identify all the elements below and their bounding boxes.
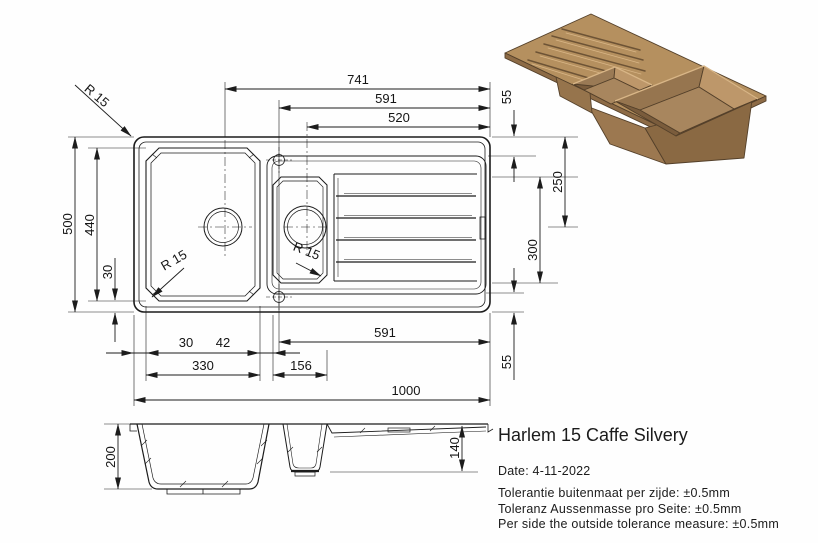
dim-200-label: 200	[103, 446, 118, 468]
dim-300-label: 300	[525, 239, 540, 261]
dim-330-label: 330	[192, 358, 214, 373]
drainer-grooves	[334, 174, 477, 281]
dim-500-label: 500	[60, 213, 75, 235]
radius-label-small-basin: R 15	[291, 239, 322, 263]
radius-label-main-basin: R 15	[158, 247, 189, 274]
radius-leader-main-basin	[152, 268, 184, 297]
dim-55-bottom-label: 55	[499, 355, 514, 369]
section-small-basin	[283, 424, 327, 472]
tolerance-line-en: Per side the outside tolerance measure: …	[498, 517, 779, 533]
tolerance-line-de: Toleranz Aussenmasse pro Seite: ±0.5mm	[498, 502, 779, 518]
product-title: Harlem 15 Caffe Silvery	[498, 425, 688, 446]
small-basin	[273, 177, 327, 283]
main-basin	[146, 148, 260, 301]
dim-30-bottom-label: 30	[179, 335, 193, 350]
top-view	[134, 122, 490, 312]
drawing-date: Date: 4-11-2022	[498, 464, 590, 478]
dim-591-top-label: 591	[375, 91, 397, 106]
dim-156-label: 156	[290, 358, 312, 373]
dim-440-label: 440	[82, 214, 97, 236]
dim-42-label: 42	[216, 335, 230, 350]
tolerance-notes: Tolerantie buitenmaat per zijde: ±0.5mm …	[498, 486, 779, 533]
dim-140-label: 140	[447, 437, 462, 459]
dim-1000-label: 1000	[392, 383, 421, 398]
tolerance-line-nl: Tolerantie buitenmaat per zijde: ±0.5mm	[498, 486, 779, 502]
sink-outer-outline	[134, 137, 490, 312]
section-main-basin	[137, 424, 269, 489]
radius-leader-small-basin	[296, 263, 321, 276]
dim-250-label: 250	[550, 171, 565, 193]
drawing-canvas: 741 591 520 55 250 300 55 500 440 30 30 …	[0, 0, 818, 543]
dim-30-left-label: 30	[100, 265, 115, 279]
arrow-segments	[75, 85, 514, 380]
dim-591-bottom-label: 591	[374, 325, 396, 340]
radius-label-top-left: R 15	[82, 81, 113, 110]
sink-inner-outline	[139, 142, 485, 307]
dim-55-top-label: 55	[499, 90, 514, 104]
dim-741-label: 741	[347, 72, 369, 87]
sink-3d-render	[505, 14, 766, 164]
dim-520-label: 520	[388, 110, 410, 125]
technical-drawing-page: 741 591 520 55 250 300 55 500 440 30 30 …	[0, 0, 818, 543]
section-view	[130, 424, 493, 494]
